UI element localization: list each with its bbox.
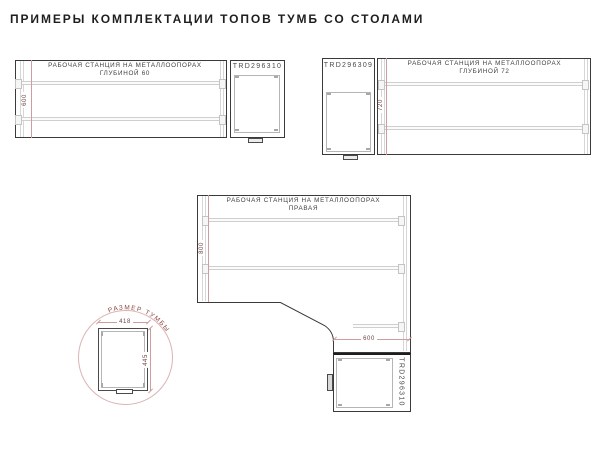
depth-dimension-line bbox=[208, 195, 209, 302]
hinge-mark bbox=[338, 359, 342, 361]
hinge-mark bbox=[338, 404, 342, 406]
station-label: РАБОЧАЯ СТАНЦИЯ НА МЕТАЛЛООПОРАХ ПРАВАЯ bbox=[226, 197, 381, 213]
support-beam bbox=[379, 126, 588, 130]
technical-drawing-page: ПРИМЕРЫ КОМПЛЕКТАЦИИ ТОПОВ ТУМБ СО СТОЛА… bbox=[0, 0, 608, 456]
cabinet-handle bbox=[343, 155, 358, 160]
station-label-line1: РАБОЧАЯ СТАНЦИЯ НА МЕТАЛЛООПОРАХ bbox=[407, 60, 562, 68]
desk-edge-strip-right bbox=[220, 61, 224, 137]
depth-dimension-line bbox=[150, 328, 151, 391]
cabinet-code: TRD296310 bbox=[398, 357, 405, 406]
beam-connector bbox=[219, 79, 226, 89]
support-beam bbox=[379, 82, 588, 86]
hinge-mark bbox=[386, 359, 390, 361]
hinge-mark bbox=[327, 148, 331, 150]
station-label-line1: РАБОЧАЯ СТАНЦИЯ НА МЕТАЛЛООПОРАХ bbox=[45, 62, 205, 70]
hinge-mark bbox=[235, 76, 239, 78]
station-label-line2: ГЛУБИНОЙ 72 bbox=[407, 68, 562, 76]
hinge-mark bbox=[143, 332, 145, 336]
cabinet-width-dimension-value: 600 bbox=[361, 336, 377, 342]
cabinet-body-outline bbox=[101, 331, 145, 388]
cabinet-code: TRD296309 bbox=[322, 62, 375, 69]
hinge-mark bbox=[366, 93, 370, 95]
hinge-mark bbox=[386, 404, 390, 406]
depth-dimension-value: 445 bbox=[143, 352, 149, 368]
cabinet-handle bbox=[327, 374, 333, 391]
cabinet-body-outline bbox=[336, 358, 393, 408]
hinge-mark bbox=[101, 332, 103, 336]
cabinet-code: TRD296310 bbox=[230, 63, 285, 70]
station-label: РАБОЧАЯ СТАНЦИЯ НА МЕТАЛЛООПОРАХ ГЛУБИНО… bbox=[45, 62, 205, 78]
beam-connector bbox=[15, 79, 22, 89]
beam-connector bbox=[398, 264, 405, 274]
beam-connector bbox=[398, 216, 405, 226]
support-beam bbox=[17, 81, 225, 85]
station-label-line2: ПРАВАЯ bbox=[226, 205, 381, 213]
hinge-mark bbox=[274, 129, 278, 131]
cabinet-handle bbox=[116, 389, 133, 394]
depth-dimension-value: 720 bbox=[378, 97, 384, 113]
page-title: ПРИМЕРЫ КОМПЛЕКТАЦИИ ТОПОВ ТУМБ СО СТОЛА… bbox=[10, 12, 424, 26]
beam-connector bbox=[378, 124, 385, 134]
desk-edge-strip-right bbox=[584, 59, 588, 154]
beam-connector bbox=[582, 80, 589, 90]
beam-connector bbox=[398, 322, 405, 332]
depth-dimension-value: 600 bbox=[22, 92, 28, 108]
hinge-mark bbox=[235, 129, 239, 131]
station-label: РАБОЧАЯ СТАНЦИЯ НА МЕТАЛЛООПОРАХ ГЛУБИНО… bbox=[407, 60, 562, 76]
depth-dimension-value: 800 bbox=[199, 240, 205, 256]
cabinet-body-outline bbox=[326, 92, 371, 152]
cabinet-body-outline bbox=[234, 75, 280, 133]
hinge-mark bbox=[143, 383, 145, 387]
support-beam bbox=[17, 117, 225, 121]
hinge-mark bbox=[101, 383, 103, 387]
support-beam-short bbox=[353, 324, 404, 328]
station-label-line1: РАБОЧАЯ СТАНЦИЯ НА МЕТАЛЛООПОРАХ bbox=[226, 197, 381, 205]
depth-dimension-line bbox=[386, 58, 387, 155]
beam-connector bbox=[378, 80, 385, 90]
hinge-mark bbox=[274, 76, 278, 78]
beam-connector bbox=[15, 115, 22, 125]
hinge-mark bbox=[327, 93, 331, 95]
station-label-line2: ГЛУБИНОЙ 60 bbox=[45, 70, 205, 78]
support-beam bbox=[204, 266, 403, 270]
width-dimension-value: 418 bbox=[117, 319, 133, 325]
beam-connector bbox=[219, 115, 226, 125]
support-beam bbox=[204, 218, 403, 222]
beam-connector bbox=[582, 124, 589, 134]
depth-dimension-line bbox=[31, 60, 32, 138]
hinge-mark bbox=[366, 148, 370, 150]
cabinet-handle bbox=[248, 138, 263, 143]
